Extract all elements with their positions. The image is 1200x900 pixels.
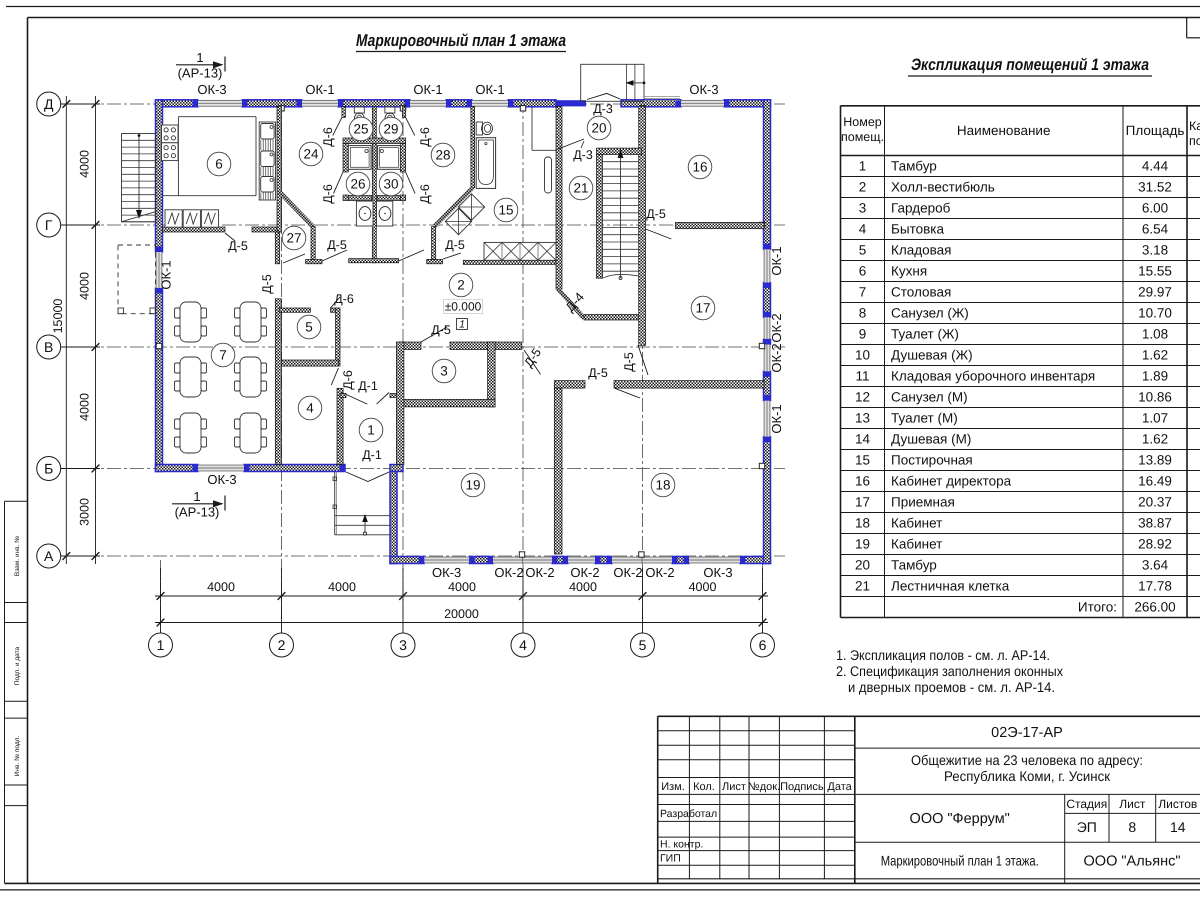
svg-text:Туалет (Ж): Туалет (Ж) [891,327,959,342]
svg-text:(АР-13): (АР-13) [175,505,220,520]
svg-text:Д-6: Д-6 [418,127,432,147]
svg-text:Д-5: Д-5 [622,352,636,372]
svg-text:и дверных проемов - см. л. АР-: и дверных проемов - см. л. АР-14. [848,679,1055,695]
svg-text:Д-5: Д-5 [431,323,451,337]
svg-text:ООО "Альянс": ООО "Альянс" [1084,854,1181,870]
svg-text:Дата: Дата [827,781,852,793]
svg-text:Д-5: Д-5 [445,238,465,252]
svg-text:±0.000: ±0.000 [445,300,482,314]
svg-text:Изм.: Изм. [661,781,685,793]
svg-text:29.97: 29.97 [1138,285,1172,300]
svg-text:1.07: 1.07 [1142,411,1168,426]
svg-text:2: 2 [859,180,867,195]
svg-text:6.00: 6.00 [1142,201,1168,216]
svg-text:Столовая: Столовая [891,285,951,300]
svg-text:17: 17 [695,301,710,316]
svg-text:Д-6: Д-6 [321,184,335,204]
svg-text:Тамбур: Тамбур [891,558,937,573]
svg-text:Итого:: Итого: [1078,600,1117,615]
svg-text:Душевая (М): Душевая (М) [891,432,971,447]
svg-text:20.37: 20.37 [1138,495,1172,510]
svg-text:Инв. № подл.: Инв. № подл. [14,736,21,777]
svg-text:3: 3 [440,364,448,379]
svg-text:ООО "Феррум": ООО "Феррум" [910,811,1010,827]
svg-text:Б: Б [44,461,53,477]
svg-text:Кладовая: Кладовая [891,243,951,258]
svg-text:Листов: Листов [1158,797,1197,811]
svg-text:ОК-3: ОК-3 [207,472,236,487]
svg-text:ОК-3: ОК-3 [432,565,461,580]
svg-text:21: 21 [573,181,588,196]
svg-text:10.70: 10.70 [1138,306,1172,321]
svg-text:20: 20 [855,558,870,573]
svg-text:4.44: 4.44 [1142,159,1169,174]
svg-text:19: 19 [855,537,870,552]
svg-text:ОК-2: ОК-2 [494,565,523,580]
svg-text:15: 15 [498,203,513,218]
svg-text:18: 18 [655,478,670,493]
svg-text:Туалет (М): Туалет (М) [891,411,958,426]
svg-text:ОК-3: ОК-3 [703,565,732,580]
svg-text:ОК-1: ОК-1 [769,246,784,275]
svg-text:Республика Коми, г. Усинск: Республика Коми, г. Усинск [944,768,1111,784]
svg-text:29: 29 [383,122,398,137]
svg-text:Номер: Номер [843,115,882,129]
svg-text:13.89: 13.89 [1138,453,1172,468]
svg-text:по: по [1189,134,1200,148]
svg-text:Площадь: Площадь [1126,123,1185,138]
svg-text:30: 30 [383,177,398,192]
svg-text:4000: 4000 [689,580,717,594]
svg-text:1: 1 [367,423,375,438]
svg-text:Д-1: Д-1 [362,448,382,462]
svg-text:ОК-2: ОК-2 [525,565,554,580]
svg-text:ОК-2: ОК-2 [570,565,599,580]
svg-text:24: 24 [303,147,319,162]
svg-text:В: В [44,339,53,355]
svg-text:Кухня: Кухня [891,264,927,279]
svg-text:Наименование: Наименование [957,123,1051,138]
svg-text:7: 7 [219,348,227,363]
svg-text:17.78: 17.78 [1138,579,1172,594]
svg-text:5: 5 [859,243,867,258]
svg-text:Д-3: Д-3 [573,148,593,162]
svg-text:Лист: Лист [722,781,746,793]
svg-text:6.54: 6.54 [1142,222,1169,237]
svg-text:15.55: 15.55 [1138,264,1172,279]
svg-text:4: 4 [306,401,314,416]
svg-text:помещ.: помещ. [841,130,884,144]
svg-text:14: 14 [855,432,871,447]
svg-text:4: 4 [519,637,527,653]
svg-text:5: 5 [305,320,313,335]
svg-text:1.62: 1.62 [1142,432,1168,447]
svg-text:Д-6: Д-6 [341,370,355,390]
svg-text:3: 3 [399,637,407,653]
svg-text:7: 7 [859,285,867,300]
svg-text:25: 25 [353,122,368,137]
svg-text:4000: 4000 [328,580,356,594]
svg-text:1: 1 [193,489,200,504]
svg-text:Д-1: Д-1 [358,379,378,393]
svg-text:Лист: Лист [1119,797,1146,811]
svg-text:Постирочная: Постирочная [891,453,973,468]
svg-text:ОК-2: ОК-2 [769,343,784,372]
svg-text:Д: Д [44,96,54,112]
svg-text:ОК-1: ОК-1 [159,260,174,289]
svg-text:ОК-3: ОК-3 [197,82,226,97]
svg-text:Д-6: Д-6 [334,292,354,306]
svg-text:Маркировочный план 1 этажа.: Маркировочный план 1 этажа. [881,853,1039,869]
svg-text:5: 5 [639,637,647,653]
svg-text:(АР-13): (АР-13) [178,66,223,81]
svg-text:А: А [44,548,54,564]
svg-text:Д-6: Д-6 [418,184,432,204]
svg-text:Д-5: Д-5 [260,274,274,294]
svg-text:Д-6: Д-6 [321,127,335,147]
svg-text:Гардероб: Гардероб [891,201,951,216]
svg-text:4000: 4000 [78,272,92,300]
svg-text:Приемная: Приемная [891,495,955,510]
svg-text:Д-3: Д-3 [593,102,613,116]
svg-text:Кладовая уборочного инвентаря: Кладовая уборочного инвентаря [891,369,1095,384]
svg-text:1.08: 1.08 [1142,327,1168,342]
svg-text:11: 11 [855,369,869,384]
svg-text:ОК-2: ОК-2 [769,313,784,342]
svg-text:ОК-2: ОК-2 [645,565,674,580]
svg-text:Ка: Ка [1189,119,1200,133]
svg-text:3000: 3000 [78,498,92,526]
svg-text:15: 15 [855,453,870,468]
svg-text:10: 10 [855,348,870,363]
svg-text:4: 4 [859,222,867,237]
svg-text:Холл-вестибюль: Холл-вестибюль [891,180,995,195]
svg-text:3.18: 3.18 [1142,243,1168,258]
svg-text:ОК-3: ОК-3 [689,82,718,97]
svg-text:27: 27 [286,231,301,246]
svg-text:1: 1 [859,159,867,174]
svg-text:4000: 4000 [448,580,476,594]
svg-text:02Э-17-АР: 02Э-17-АР [991,725,1063,741]
svg-text:18: 18 [855,516,870,531]
svg-text:9: 9 [859,327,867,342]
svg-text:Бытовка: Бытовка [891,222,944,237]
svg-text:20000: 20000 [444,607,479,621]
svg-text:26: 26 [350,177,365,192]
svg-text:Подпись: Подпись [780,781,824,793]
svg-text:Д-5: Д-5 [588,366,608,380]
svg-text:12: 12 [855,390,870,405]
svg-text:Санузел (М): Санузел (М) [891,390,968,405]
svg-text:Маркировочный план 1 этажа: Маркировочный план 1 этажа [356,31,566,50]
svg-text:28: 28 [435,148,450,163]
svg-text:4000: 4000 [78,393,92,421]
svg-text:4000: 4000 [78,150,92,178]
svg-text:1.89: 1.89 [1142,369,1168,384]
svg-text:16: 16 [855,474,870,489]
svg-text:Лестничная клетка: Лестничная клетка [891,579,1010,594]
svg-text:15000: 15000 [51,299,65,334]
svg-text:1: 1 [196,50,203,65]
svg-text:19: 19 [465,478,480,493]
svg-text:3.64: 3.64 [1142,558,1169,573]
svg-text:Д-5: Д-5 [228,239,248,253]
svg-text:38.87: 38.87 [1138,516,1172,531]
svg-text:Кабинет: Кабинет [891,537,942,552]
svg-text:Н. контр.: Н. контр. [660,839,703,851]
svg-text:28.92: 28.92 [1138,537,1172,552]
svg-text:ОК-2: ОК-2 [613,565,642,580]
svg-text:Стадия: Стадия [1066,797,1107,811]
svg-text:Разработал: Разработал [660,808,717,820]
svg-text:20: 20 [591,121,606,136]
svg-text:ГИП: ГИП [660,853,681,865]
svg-text:14: 14 [1170,819,1186,835]
svg-text:10.86: 10.86 [1138,390,1172,405]
svg-text:ОК-1: ОК-1 [475,82,504,97]
svg-text:266.00: 266.00 [1134,600,1175,615]
svg-text:3: 3 [859,201,867,216]
svg-text:Кабинет директора: Кабинет директора [891,474,1012,489]
svg-text:8: 8 [1128,819,1136,835]
svg-text:2. Спецификация заполнения око: 2. Спецификация заполнения оконных [836,663,1063,679]
svg-text:Г: Г [45,217,53,233]
svg-text:2: 2 [457,278,465,293]
svg-text:Экспликация помещений 1 этажа: Экспликация помещений 1 этажа [911,56,1149,74]
svg-text:Д-5: Д-5 [646,207,666,221]
svg-text:16: 16 [692,160,707,175]
svg-text:Душевая (Ж): Душевая (Ж) [891,348,973,363]
svg-text:13: 13 [855,411,870,426]
svg-text:6: 6 [215,157,223,172]
svg-text:Общежитие на 23 человека по ад: Общежитие на 23 человека по адресу: [911,752,1143,768]
svg-text:4000: 4000 [207,580,235,594]
svg-text:21: 21 [855,579,870,594]
svg-text:31.52: 31.52 [1138,180,1172,195]
svg-text:8: 8 [859,306,867,321]
svg-text:ОК-1: ОК-1 [769,404,784,433]
svg-text:6: 6 [859,264,867,279]
svg-text:Подп. и дата: Подп. и дата [14,646,21,685]
svg-text:16.49: 16.49 [1138,474,1172,489]
svg-text:1.62: 1.62 [1142,348,1168,363]
svg-text:6: 6 [759,637,767,653]
svg-text:4000: 4000 [569,580,597,594]
svg-text:2: 2 [278,637,286,653]
svg-text:ОК-1: ОК-1 [305,82,334,97]
svg-text:1: 1 [459,319,465,331]
svg-text:ЭП: ЭП [1077,819,1097,835]
svg-text:Тамбур: Тамбур [891,159,937,174]
svg-text:Взам. инв. №: Взам. инв. № [14,536,21,576]
svg-text:Д-5: Д-5 [327,238,347,252]
svg-text:Санузел (Ж): Санузел (Ж) [891,306,969,321]
svg-text:№док.: №док. [748,781,780,793]
svg-text:1. Экспликация полов - см. л.: 1. Экспликация полов - см. л. АР-14. [836,647,1050,663]
svg-text:17: 17 [855,495,870,510]
svg-text:Кабинет: Кабинет [891,516,942,531]
svg-text:Кол.: Кол. [693,781,715,793]
svg-text:1: 1 [157,637,165,653]
svg-text:ОК-1: ОК-1 [413,82,442,97]
